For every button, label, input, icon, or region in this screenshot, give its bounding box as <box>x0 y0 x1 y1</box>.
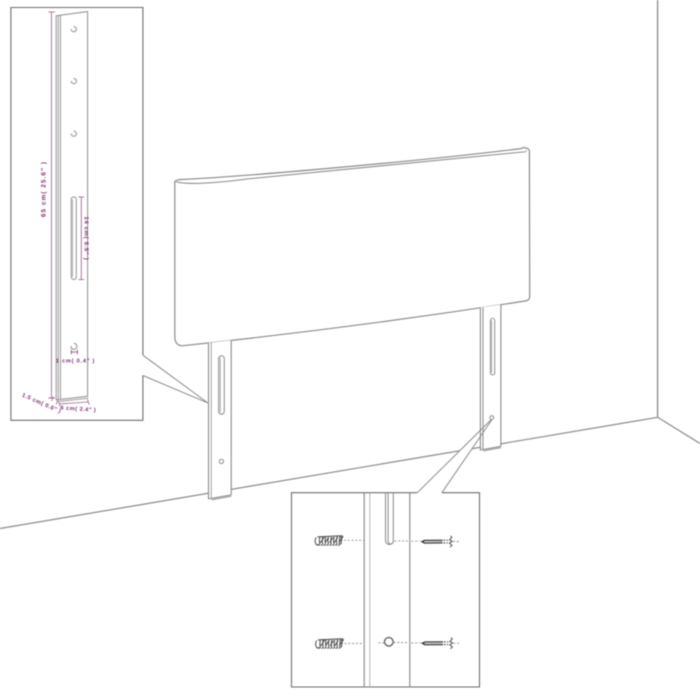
svg-text:65 cm( 25.6″ ): 65 cm( 25.6″ ) <box>40 161 47 217</box>
svg-text:14 cm( 5.5″ ): 14 cm( 5.5″ ) <box>83 216 90 260</box>
svg-text:1 cm( 0.4″ ): 1 cm( 0.4″ ) <box>56 357 95 364</box>
